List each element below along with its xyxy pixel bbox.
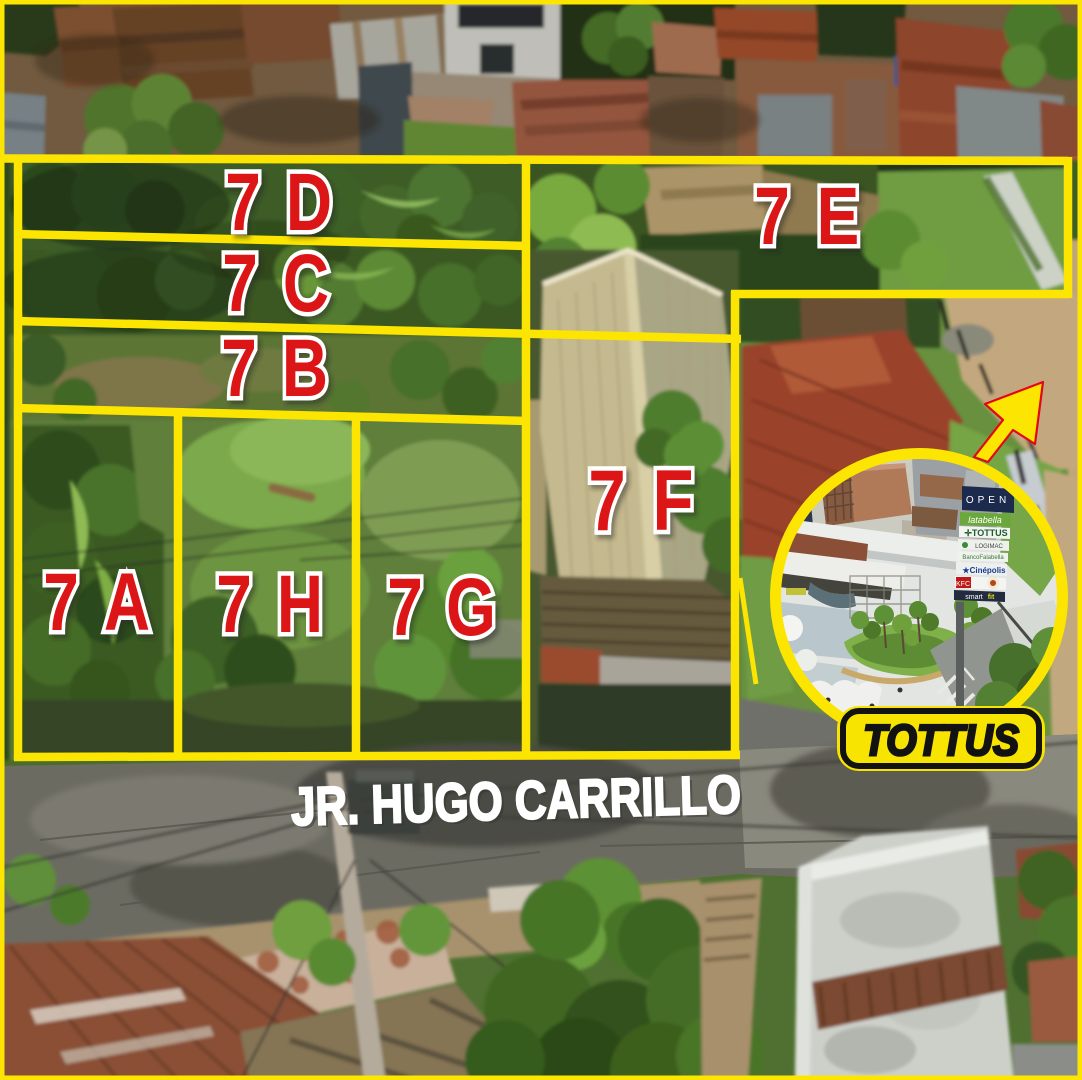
svg-text:fit: fit xyxy=(988,594,995,601)
svg-text:7: 7 xyxy=(225,155,261,248)
svg-text:✛TOTTUS: ✛TOTTUS xyxy=(964,528,1007,538)
svg-text:7: 7 xyxy=(43,555,79,648)
svg-text:BancoFalabella: BancoFalabella xyxy=(962,555,1004,561)
svg-text:latabella: latabella xyxy=(968,515,1002,525)
svg-text:★Cinépolis: ★Cinépolis xyxy=(962,566,1006,575)
svg-text:B: B xyxy=(282,321,328,414)
svg-text:LOGIMAC: LOGIMAC xyxy=(975,544,1003,550)
svg-text:JR. HUGO CARRILLO: JR. HUGO CARRILLO xyxy=(290,765,741,838)
svg-text:F: F xyxy=(653,453,694,549)
svg-text:KFC: KFC xyxy=(956,581,970,588)
svg-text:7: 7 xyxy=(222,236,258,329)
svg-text:7: 7 xyxy=(754,169,790,262)
svg-text:7: 7 xyxy=(221,321,257,414)
svg-text:G: G xyxy=(446,560,496,653)
svg-text:7: 7 xyxy=(588,453,625,549)
svg-text:7: 7 xyxy=(216,557,252,650)
svg-text:OPEN: OPEN xyxy=(966,495,1010,506)
svg-text:7: 7 xyxy=(387,560,423,653)
svg-text:H: H xyxy=(277,557,323,650)
svg-text:D: D xyxy=(286,155,332,248)
svg-text:C: C xyxy=(283,236,329,329)
svg-text:TOTTUS: TOTTUS xyxy=(863,716,1019,765)
svg-text:E: E xyxy=(817,169,860,262)
svg-text:A: A xyxy=(104,555,150,648)
svg-text:smart: smart xyxy=(965,594,983,601)
